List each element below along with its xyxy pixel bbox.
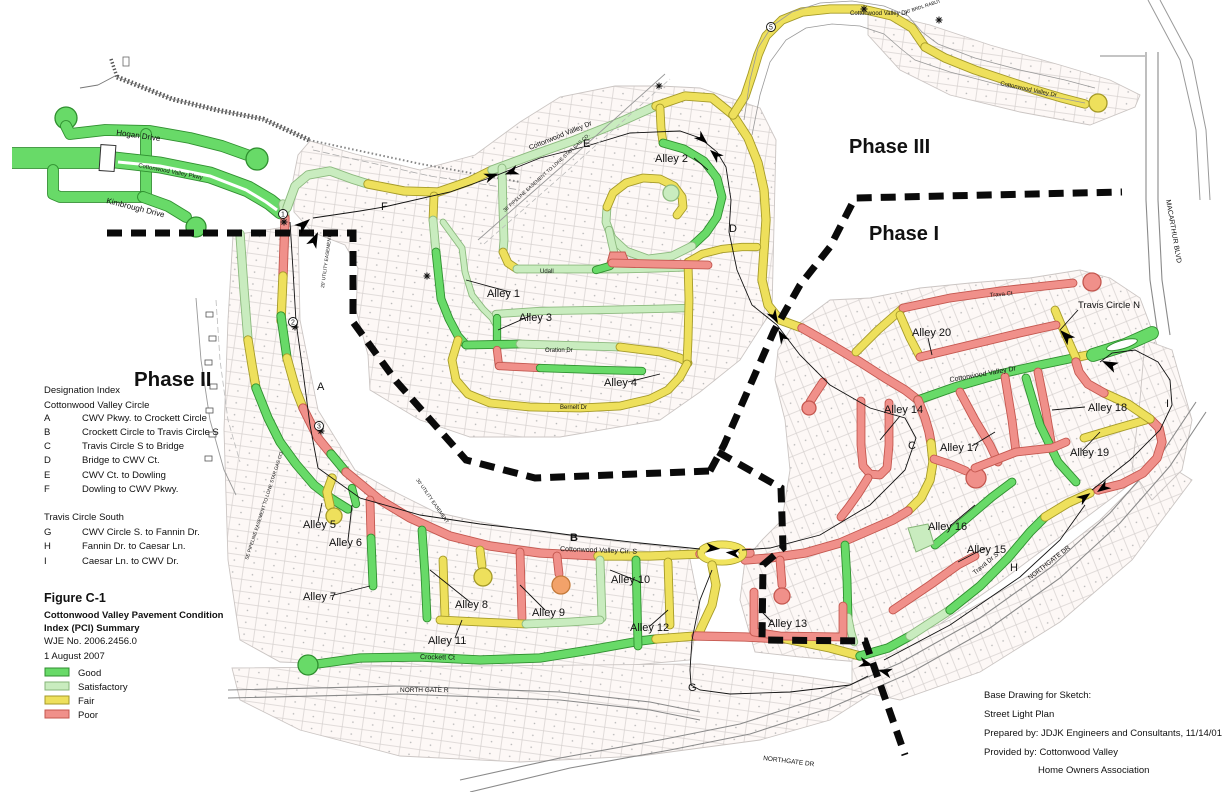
svg-text:1 August 2007: 1 August 2007 [44, 651, 105, 662]
svg-text:Bernelt Dr: Bernelt Dr [560, 405, 587, 411]
svg-text:Alley 7: Alley 7 [303, 591, 336, 603]
svg-text:Alley 6: Alley 6 [329, 537, 362, 549]
svg-text:CWV Pkwy. to Crockett Circle: CWV Pkwy. to Crockett Circle [82, 413, 207, 424]
svg-text:Udall: Udall [540, 269, 554, 275]
svg-text:Alley 9: Alley 9 [532, 607, 565, 619]
svg-text:1: 1 [281, 212, 285, 219]
svg-text:Phase III: Phase III [849, 136, 930, 158]
svg-text:Travis Circle S to Bridge: Travis Circle S to Bridge [82, 441, 184, 452]
svg-text:H: H [1010, 562, 1018, 574]
svg-text:F: F [381, 201, 388, 213]
svg-text:G: G [688, 682, 697, 694]
svg-text:Alley 5: Alley 5 [303, 519, 336, 531]
svg-text:Phase I: Phase I [869, 223, 939, 245]
svg-text:Provided by: Cottonwood Valle: Provided by: Cottonwood Valley [984, 747, 1118, 758]
svg-text:Street Light Plan: Street Light Plan [984, 709, 1054, 720]
svg-text:Alley 12: Alley 12 [630, 622, 669, 634]
svg-text:Cottonwood Valley Circle: Cottonwood Valley Circle [44, 400, 149, 411]
svg-text:Caesar Ln. to CWV Dr.: Caesar Ln. to CWV Dr. [82, 556, 179, 567]
svg-text:A: A [317, 381, 325, 393]
svg-text:CWV Circle S. to Fannin Dr.: CWV Circle S. to Fannin Dr. [82, 527, 200, 538]
svg-text:Alley 3: Alley 3 [519, 312, 552, 324]
svg-text:CWV Ct. to Dowling: CWV Ct. to Dowling [82, 470, 166, 481]
svg-text:Bridge to CWV Ct.: Bridge to CWV Ct. [82, 455, 160, 466]
svg-text:Fair: Fair [78, 696, 94, 707]
svg-text:Designation Index: Designation Index [44, 385, 120, 396]
svg-text:2: 2 [291, 320, 295, 327]
svg-text:Alley 20: Alley 20 [912, 327, 951, 339]
svg-text:WJE No. 2006.2456.0: WJE No. 2006.2456.0 [44, 636, 137, 647]
svg-text:3: 3 [317, 424, 321, 431]
svg-text:D: D [729, 223, 737, 235]
svg-text:Travis Circle South: Travis Circle South [44, 512, 124, 523]
svg-text:C: C [44, 441, 51, 452]
svg-text:Alley 10: Alley 10 [611, 574, 650, 586]
svg-text:Alley 8: Alley 8 [455, 599, 488, 611]
svg-text:Travis Circle N: Travis Circle N [1078, 300, 1140, 311]
svg-text:Prepared by: JDJK Engineers a: Prepared by: JDJK Engineers and Consulta… [984, 728, 1222, 739]
svg-text:C: C [908, 440, 916, 452]
svg-text:Alley 19: Alley 19 [1070, 447, 1109, 459]
svg-text:Alley 17: Alley 17 [940, 442, 979, 454]
svg-text:A: A [44, 413, 51, 424]
svg-text:Dowling to CWV Pkwy.: Dowling to CWV Pkwy. [82, 484, 178, 495]
svg-text:G: G [44, 527, 51, 538]
svg-text:Alley 14: Alley 14 [884, 404, 923, 416]
svg-text:Satisfactory: Satisfactory [78, 682, 128, 693]
svg-text:Alley 18: Alley 18 [1088, 402, 1127, 414]
svg-text:5: 5 [769, 25, 773, 32]
svg-text:B: B [44, 427, 50, 438]
svg-text:Alley 4: Alley 4 [604, 377, 637, 389]
svg-text:E: E [583, 138, 590, 150]
svg-text:Index (PCI) Summary: Index (PCI) Summary [44, 623, 140, 634]
svg-text:E: E [44, 470, 50, 481]
svg-text:Base Drawing for Sketch:: Base Drawing for Sketch: [984, 690, 1091, 701]
svg-text:I: I [1166, 398, 1169, 410]
svg-text:Fannin Dr. to Caesar Ln.: Fannin Dr. to Caesar Ln. [82, 541, 186, 552]
svg-text:Crockett Circle to Travis Circ: Crockett Circle to Travis Circle S [82, 427, 219, 438]
svg-text:Oration Dr: Oration Dr [545, 348, 573, 354]
svg-text:B: B [570, 532, 578, 544]
svg-text:F: F [44, 484, 50, 495]
svg-text:Home Owners Association: Home Owners Association [1038, 765, 1149, 776]
svg-text:Figure C-1: Figure C-1 [44, 591, 106, 605]
svg-text:D: D [44, 455, 51, 466]
svg-text:Alley 16: Alley 16 [928, 521, 967, 533]
svg-text:Alley 11: Alley 11 [428, 635, 466, 647]
svg-text:NORTH GATE R: NORTH GATE R [400, 687, 449, 694]
svg-text:Good: Good [78, 668, 101, 679]
svg-text:Poor: Poor [78, 710, 98, 721]
svg-text:Cottonwood Valley Dr: Cottonwood Valley Dr [850, 11, 908, 17]
svg-text:Cottonwood Valley Pavement Con: Cottonwood Valley Pavement Condition [44, 610, 224, 621]
svg-text:Alley 13: Alley 13 [768, 618, 807, 630]
svg-text:H: H [44, 541, 51, 552]
svg-text:Alley 2: Alley 2 [655, 153, 688, 165]
svg-text:I: I [44, 556, 47, 567]
svg-text:Phase II: Phase II [134, 368, 212, 391]
svg-text:Crockett Ct: Crockett Ct [420, 654, 455, 662]
